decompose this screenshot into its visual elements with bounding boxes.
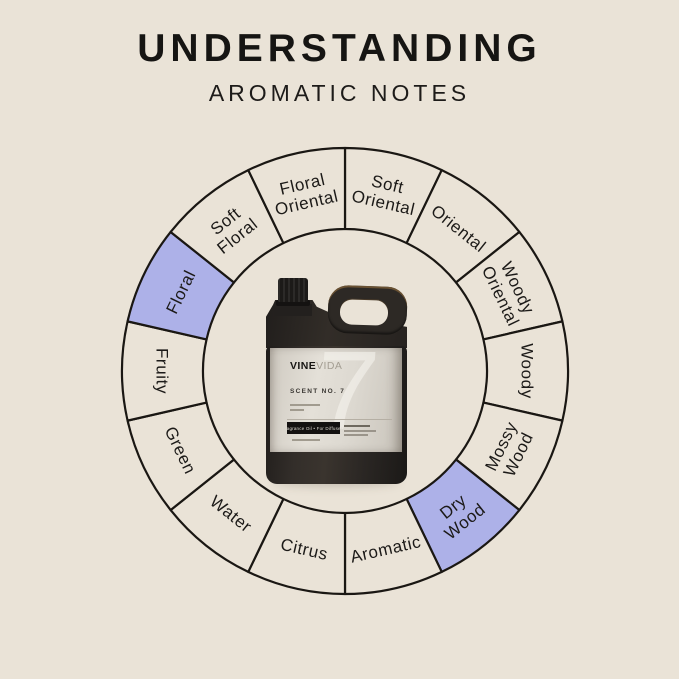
label-divider-rule [287, 419, 392, 420]
label-fineprint-line [344, 434, 368, 436]
label-fineprint-line [292, 439, 320, 441]
bottle-handle-hole [340, 299, 389, 326]
infographic-page: UNDERSTANDING AROMATIC NOTES SoftOrienta… [0, 0, 679, 679]
brand-logo-light: VIDA [316, 360, 342, 372]
label-fineprint-line [344, 430, 376, 432]
wheel-label-woody: Woody [518, 343, 537, 399]
brand-logo: VINEVIDA [290, 360, 342, 372]
label-fineprint-line [290, 409, 304, 411]
bottle-cap [278, 278, 308, 302]
label-fineprint-line [290, 404, 320, 406]
label-fineprint-line [344, 425, 370, 427]
bottle-label: 7 VINEVIDA SCENT NO. 7 Fragrance Oil • F… [270, 348, 402, 452]
scent-number-label: SCENT NO. 7 [290, 388, 345, 395]
product-bottle: 7 VINEVIDA SCENT NO. 7 Fragrance Oil • F… [264, 272, 407, 484]
label-badge: Fragrance Oil • For Diffusers [287, 422, 340, 434]
brand-logo-bold: VINE [290, 360, 316, 372]
wheel-label-fruity: Fruity [153, 348, 172, 394]
